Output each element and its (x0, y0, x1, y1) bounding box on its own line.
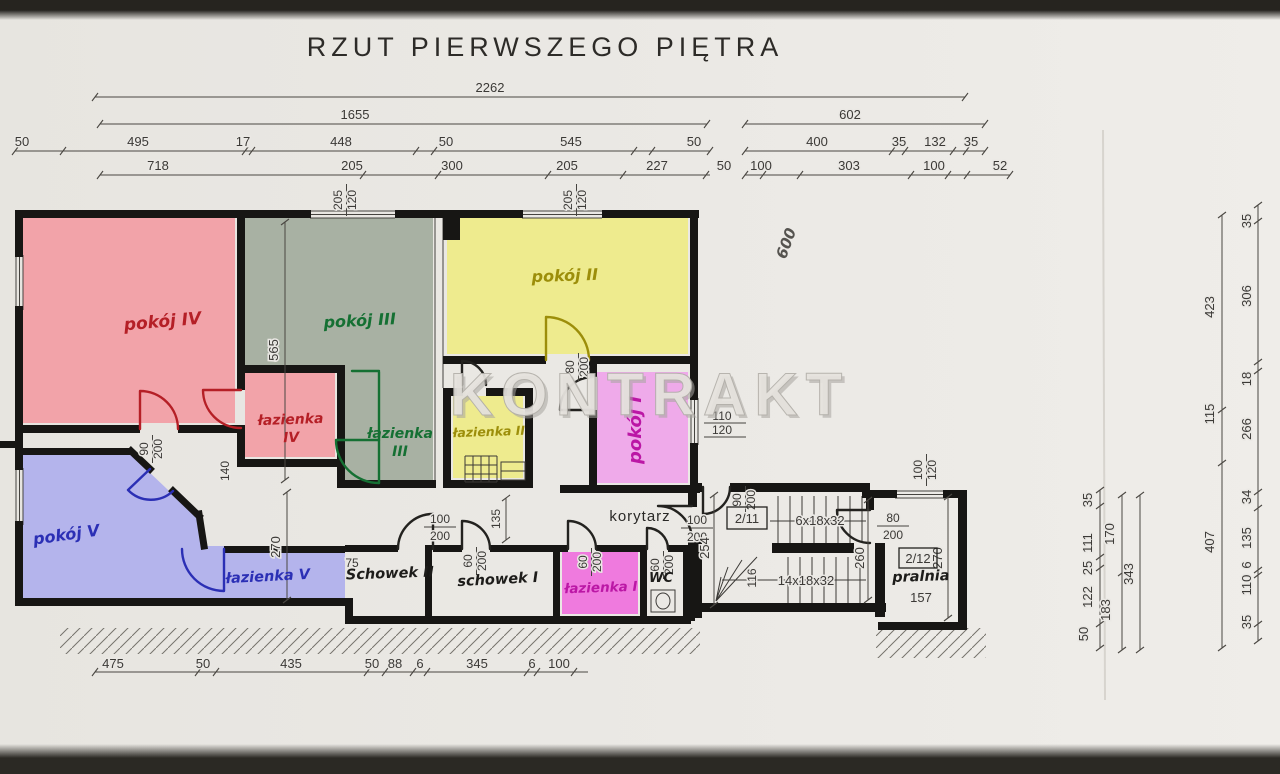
svg-text:170: 170 (1102, 523, 1117, 545)
floor-plan-scan: RZUT PIERWSZEGO PIĘTRA (0, 0, 1280, 774)
svg-text:343: 343 (1121, 563, 1136, 585)
svg-text:52: 52 (993, 158, 1007, 173)
svg-text:200: 200 (590, 552, 604, 572)
svg-text:2262: 2262 (476, 80, 505, 95)
svg-text:407: 407 (1202, 531, 1217, 553)
svg-text:100: 100 (750, 158, 772, 173)
room-label-pokoj-iii: pokój III (322, 309, 396, 332)
svg-text:18: 18 (1239, 372, 1254, 386)
svg-text:100: 100 (923, 158, 945, 173)
svg-text:88: 88 (388, 656, 402, 671)
svg-text:345: 345 (466, 656, 488, 671)
room-label-lazienka-i: łazienka I (563, 579, 638, 598)
svg-text:90: 90 (730, 493, 744, 507)
svg-text:6: 6 (1239, 561, 1254, 568)
room-label-korytarz: korytarz (609, 508, 670, 525)
svg-text:100: 100 (911, 460, 925, 480)
svg-text:35: 35 (1239, 615, 1254, 629)
svg-text:183: 183 (1098, 599, 1113, 621)
svg-text:602: 602 (839, 107, 861, 122)
svg-text:135: 135 (1239, 527, 1254, 549)
floor-plan-svg: RZUT PIERWSZEGO PIĘTRA (0, 0, 1280, 774)
svg-text:110: 110 (1239, 575, 1254, 596)
svg-text:1655: 1655 (341, 107, 370, 122)
svg-text:6: 6 (416, 656, 423, 671)
room-label-pokoj-ii: pokój II (530, 265, 598, 286)
svg-text:120: 120 (575, 190, 589, 210)
svg-text:200: 200 (151, 439, 165, 459)
svg-text:50: 50 (687, 134, 701, 149)
svg-text:115: 115 (1202, 404, 1217, 425)
svg-text:200: 200 (883, 528, 903, 542)
svg-text:122: 122 (1080, 586, 1095, 608)
svg-text:423: 423 (1202, 296, 1217, 318)
svg-text:60: 60 (576, 555, 590, 569)
room-label-pralnia: pralnia (891, 568, 950, 586)
svg-text:565: 565 (266, 339, 281, 361)
svg-text:205: 205 (341, 158, 363, 173)
svg-text:495: 495 (127, 134, 149, 149)
svg-text:435: 435 (280, 656, 302, 671)
svg-text:254: 254 (697, 537, 712, 559)
svg-text:50: 50 (717, 158, 731, 173)
room-fill-pokoj-ii (447, 218, 688, 354)
svg-text:50: 50 (1076, 627, 1091, 641)
stair-upper-run-label: 6x18x32 (795, 513, 844, 528)
svg-text:260: 260 (852, 547, 867, 569)
svg-text:100: 100 (430, 512, 450, 526)
svg-text:100: 100 (687, 513, 707, 527)
room-fill-lazienka-iii (345, 368, 433, 480)
svg-text:306: 306 (1239, 285, 1254, 307)
svg-text:50: 50 (365, 656, 379, 671)
svg-text:303: 303 (838, 158, 860, 173)
stair-landing-rail (772, 543, 854, 553)
room-tag-lower: 2/12 (905, 551, 930, 566)
svg-text:80: 80 (886, 511, 900, 525)
watermark: KONTRAKT KONTRAKT (450, 361, 854, 431)
svg-text:111: 111 (1080, 533, 1095, 553)
svg-text:50: 50 (196, 656, 210, 671)
svg-text:205: 205 (331, 190, 345, 210)
svg-text:34: 34 (1239, 490, 1254, 504)
stair-lower-run-label: 14x18x32 (778, 573, 834, 588)
svg-text:132: 132 (924, 134, 946, 149)
svg-text:35: 35 (1239, 214, 1254, 228)
svg-text:50: 50 (15, 134, 29, 149)
svg-text:35: 35 (964, 134, 978, 149)
room-label-wc: WC (649, 571, 673, 586)
photo-edge-top-fade (0, 10, 1280, 20)
svg-text:270: 270 (268, 536, 283, 558)
svg-text:448: 448 (330, 134, 352, 149)
svg-text:545: 545 (560, 134, 582, 149)
svg-text:200: 200 (430, 529, 450, 543)
svg-text:90: 90 (137, 442, 151, 456)
svg-text:120: 120 (925, 460, 939, 480)
svg-text:400: 400 (806, 134, 828, 149)
photo-edge-top (0, 0, 1280, 10)
svg-text:25: 25 (1080, 561, 1095, 575)
room-tag-upper: 2/11 (735, 511, 759, 526)
svg-text:35: 35 (1080, 493, 1095, 507)
svg-text:50: 50 (439, 134, 453, 149)
svg-text:IV: IV (283, 430, 301, 447)
svg-text:227: 227 (646, 158, 668, 173)
svg-text:łazienka: łazienka (366, 426, 433, 442)
svg-text:60: 60 (648, 558, 662, 572)
svg-text:475: 475 (102, 656, 124, 671)
svg-text:120: 120 (345, 190, 359, 210)
svg-text:116: 116 (745, 568, 759, 587)
svg-text:35: 35 (892, 134, 906, 149)
svg-text:140: 140 (218, 461, 232, 481)
svg-text:135: 135 (489, 509, 503, 529)
pralnia-area-number: 157 (910, 590, 932, 605)
svg-text:KONTRAKT: KONTRAKT (450, 361, 851, 428)
svg-text:300: 300 (441, 158, 463, 173)
page-title: RZUT PIERWSZEGO PIĘTRA (307, 32, 784, 62)
svg-text:205: 205 (561, 190, 575, 210)
svg-text:205: 205 (556, 158, 578, 173)
photo-edge-bottom (0, 758, 1280, 774)
svg-text:100: 100 (548, 656, 570, 671)
svg-text:266: 266 (1239, 418, 1254, 440)
svg-text:6: 6 (528, 656, 535, 671)
svg-text:III: III (392, 444, 408, 460)
svg-text:200: 200 (475, 551, 489, 571)
svg-text:17: 17 (236, 134, 250, 149)
svg-text:łazienka: łazienka (256, 411, 323, 429)
dim-row-total: 2262 (476, 80, 505, 95)
room-label-schowek-ii: Schowek II (346, 564, 435, 583)
photo-edge-bottom-fade (0, 744, 1280, 758)
svg-text:718: 718 (147, 158, 169, 173)
svg-text:60: 60 (461, 554, 475, 568)
